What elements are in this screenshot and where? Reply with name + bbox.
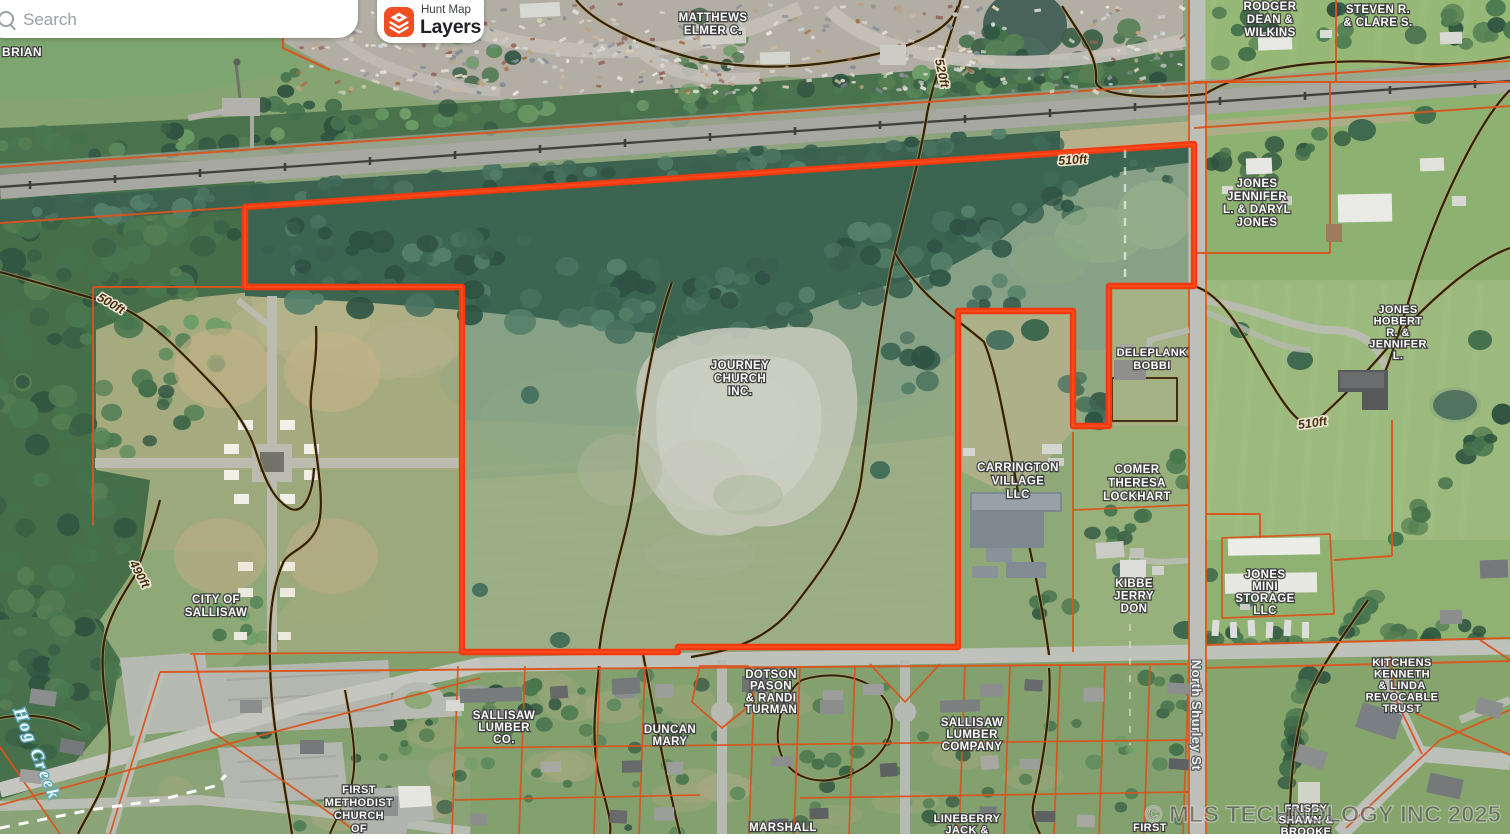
svg-text:CITY OF: CITY OF <box>192 594 240 606</box>
svg-text:DEAN &: DEAN & <box>1247 14 1294 26</box>
svg-text:RODGER: RODGER <box>1244 1 1297 13</box>
svg-text:METHODIST: METHODIST <box>325 797 393 809</box>
svg-text:CARRINGTON: CARRINGTON <box>977 462 1059 474</box>
svg-text:MATTHEWS: MATTHEWS <box>679 12 748 24</box>
svg-text:KENNETH: KENNETH <box>1374 669 1430 681</box>
svg-text:INC.: INC. <box>728 386 753 398</box>
svg-text:HOBERT: HOBERT <box>1374 316 1423 328</box>
svg-text:JOURNEY: JOURNEY <box>711 360 769 372</box>
svg-text:JENNIFER: JENNIFER <box>1227 191 1287 203</box>
svg-text:LINEBERRY: LINEBERRY <box>934 813 1001 825</box>
svg-text:BRIAN: BRIAN <box>2 45 42 59</box>
svg-text:STEVEN R.: STEVEN R. <box>1346 4 1410 16</box>
svg-text:LLC: LLC <box>1253 605 1277 617</box>
svg-text:North Shurley St: North Shurley St <box>1189 660 1204 771</box>
svg-text:510ft: 510ft <box>1058 152 1089 168</box>
svg-text:LLC: LLC <box>1006 489 1030 501</box>
svg-text:TRUST: TRUST <box>1383 703 1422 715</box>
svg-text:L.: L. <box>1393 350 1404 362</box>
svg-text:COMPANY: COMPANY <box>942 741 1003 753</box>
svg-text:& CLARE S.: & CLARE S. <box>1343 17 1412 29</box>
svg-text:CHURCH: CHURCH <box>334 810 384 822</box>
svg-text:DOTSON: DOTSON <box>745 669 797 681</box>
svg-text:JONES: JONES <box>1378 304 1417 316</box>
svg-text:FIRST: FIRST <box>342 784 376 796</box>
svg-text:KITCHENS: KITCHENS <box>1372 657 1431 669</box>
svg-text:SALLISAW: SALLISAW <box>473 710 536 722</box>
svg-text:MARY: MARY <box>652 736 687 748</box>
svg-text:SALLISAW: SALLISAW <box>185 607 248 619</box>
svg-text:PASON: PASON <box>750 681 792 693</box>
svg-text:R. &: R. & <box>1386 327 1410 339</box>
svg-text:LUMBER: LUMBER <box>478 722 530 734</box>
svg-text:& RANDI: & RANDI <box>746 692 797 704</box>
svg-text:VILLAGE: VILLAGE <box>992 476 1045 488</box>
svg-text:ELMER C.: ELMER C. <box>684 25 742 37</box>
svg-text:JERRY: JERRY <box>1114 591 1154 603</box>
svg-text:LOCKHART: LOCKHART <box>1103 491 1171 503</box>
svg-text:REVOCABLE: REVOCABLE <box>1366 692 1439 704</box>
svg-text:LUMBER: LUMBER <box>946 729 998 741</box>
svg-text:CHURCH: CHURCH <box>714 373 766 385</box>
svg-text:DUNCAN: DUNCAN <box>644 724 696 736</box>
svg-text:JENNIFER: JENNIFER <box>1369 339 1427 351</box>
svg-text:COMER: COMER <box>1115 464 1160 476</box>
svg-text:JONES: JONES <box>1237 217 1278 229</box>
svg-text:L. & DARYL: L. & DARYL <box>1223 204 1291 216</box>
svg-text:WILKINS: WILKINS <box>1244 27 1295 39</box>
svg-text:BROOKE: BROOKE <box>1281 826 1332 834</box>
svg-text:DON: DON <box>1121 603 1148 615</box>
svg-text:BOBBI: BOBBI <box>1133 360 1170 372</box>
svg-text:MINI: MINI <box>1252 581 1278 593</box>
svg-text:DELEPLANK: DELEPLANK <box>1117 347 1188 359</box>
svg-text:SALLISAW: SALLISAW <box>941 717 1004 729</box>
svg-text:JONES: JONES <box>1237 178 1278 190</box>
svg-text:TURMAN: TURMAN <box>745 704 797 716</box>
svg-text:THERESA: THERESA <box>1108 478 1166 490</box>
svg-text:STORAGE: STORAGE <box>1235 593 1294 605</box>
svg-text:MARSHALL: MARSHALL <box>749 822 817 834</box>
svg-text:KIBBE: KIBBE <box>1115 578 1153 590</box>
svg-text:JACK &: JACK & <box>945 825 988 835</box>
svg-text:JONES: JONES <box>1245 569 1286 581</box>
svg-text:OF: OF <box>351 823 367 834</box>
svg-text:& LINDA: & LINDA <box>1378 680 1425 692</box>
svg-text:CO.: CO. <box>493 734 515 746</box>
svg-text:© MLS TECHNOLOGY INC 2025: © MLS TECHNOLOGY INC 2025 <box>1145 801 1501 827</box>
